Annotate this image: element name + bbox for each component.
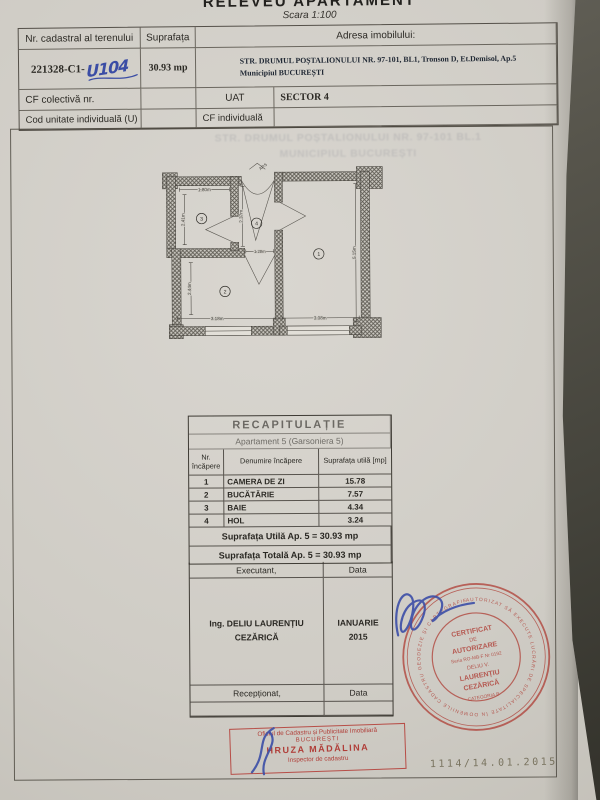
room-number-kitchen: 2 <box>224 289 227 295</box>
executant-name: Ing. DELIU LAURENȚIU CEZĂRICĂ <box>190 578 325 686</box>
entrance-door-arc <box>241 180 274 240</box>
entrance-label: AP.5 <box>258 162 268 171</box>
empty-cell <box>325 701 393 715</box>
dim-living-width: 3.08m <box>314 315 327 320</box>
scanned-document-page: RELEVEU APARTAMENT Scara 1:100 Nr. cadas… <box>0 0 600 800</box>
table-row-nr: 1 <box>189 475 224 488</box>
dim-hol-width: 1.28m <box>254 249 266 254</box>
table-row-name: BUCĂTĂRIE <box>224 488 319 502</box>
recap-table: RECAPITULAȚIE Apartament 5 (Garsoniera 5… <box>188 414 393 564</box>
dim-baie-width: 1.80m <box>198 187 211 192</box>
document-body: STR. DRUMUL POȘTALIONULUI NR. 97-101 BL.… <box>0 0 600 800</box>
dim-kitchen-height: 2.44m <box>187 282 192 295</box>
signature-block: Executant, Data Ing. DELIU LAURENȚIU CEZ… <box>189 561 394 717</box>
table-row-name: BAIE <box>224 501 319 515</box>
date-value: IANUARIE 2015 <box>324 577 393 684</box>
dim-baie-height: 2.41m <box>181 213 186 226</box>
data-label2: Data <box>324 684 392 701</box>
recap-title: RECAPITULAȚIE <box>189 415 391 434</box>
table-row-name: CAMERA DE ZI <box>224 475 319 489</box>
table-row-nr: 3 <box>189 501 224 514</box>
floor-plan: AP.5 1.80m 2.41m 2.37m 1.28m 5.15m 3.08m… <box>146 161 399 359</box>
recap-header-nr: Nr. încăpere <box>189 449 224 475</box>
recap-subtitle: Apartament 5 (Garsoniera 5) <box>189 433 391 449</box>
dim-hol-height: 2.37m <box>239 210 244 223</box>
table-row-nr: 4 <box>189 514 224 527</box>
bleed-through-text: STR. DRUMUL POȘTALIONULUI NR. 97-101 BL.… <box>143 129 553 163</box>
walls <box>162 166 383 338</box>
room-number-baie: 3 <box>200 217 203 223</box>
authorization-stamp: AUTORIZAT SĂ EXECUTE LUCRĂRI DE SPECIALI… <box>384 574 570 740</box>
executant-label: Executant, <box>190 562 324 579</box>
stamp-line-deliu: DELIU V. <box>466 662 490 672</box>
table-row-area: 15.78 <box>319 474 391 487</box>
dim-kitchen-width: 3.18m <box>211 316 224 321</box>
table-row-name: HOL <box>224 514 319 528</box>
living-door-arc <box>279 202 305 230</box>
table-row-area: 4.34 <box>319 500 391 513</box>
receptionat-label: Recepționat, <box>190 685 324 703</box>
total-util-row: Suprafața Utilă Ap. 5 = 30.93 mp <box>189 526 391 546</box>
recap-header-suprafata: Suprafața utilă [mp] <box>319 448 391 474</box>
bathroom-door-arc <box>206 216 234 242</box>
room-number-hol: 4 <box>255 221 258 227</box>
data-label: Data <box>324 561 392 577</box>
inspector-signature <box>238 722 298 780</box>
table-row-nr: 2 <box>189 488 224 501</box>
stamp-line-categoria: CATEGORIA B <box>467 691 500 703</box>
kitchen-door-arc <box>245 255 275 284</box>
dim-living-height: 5.15m <box>352 246 357 259</box>
stamp-line-de: DE <box>469 637 478 644</box>
room-number-living: 1 <box>317 252 320 258</box>
recap-header-denumire: Denumire încăpere <box>224 449 319 476</box>
empty-cell <box>191 702 325 717</box>
table-row-area: 7.57 <box>319 487 391 500</box>
table-row-area: 3.24 <box>319 513 391 526</box>
